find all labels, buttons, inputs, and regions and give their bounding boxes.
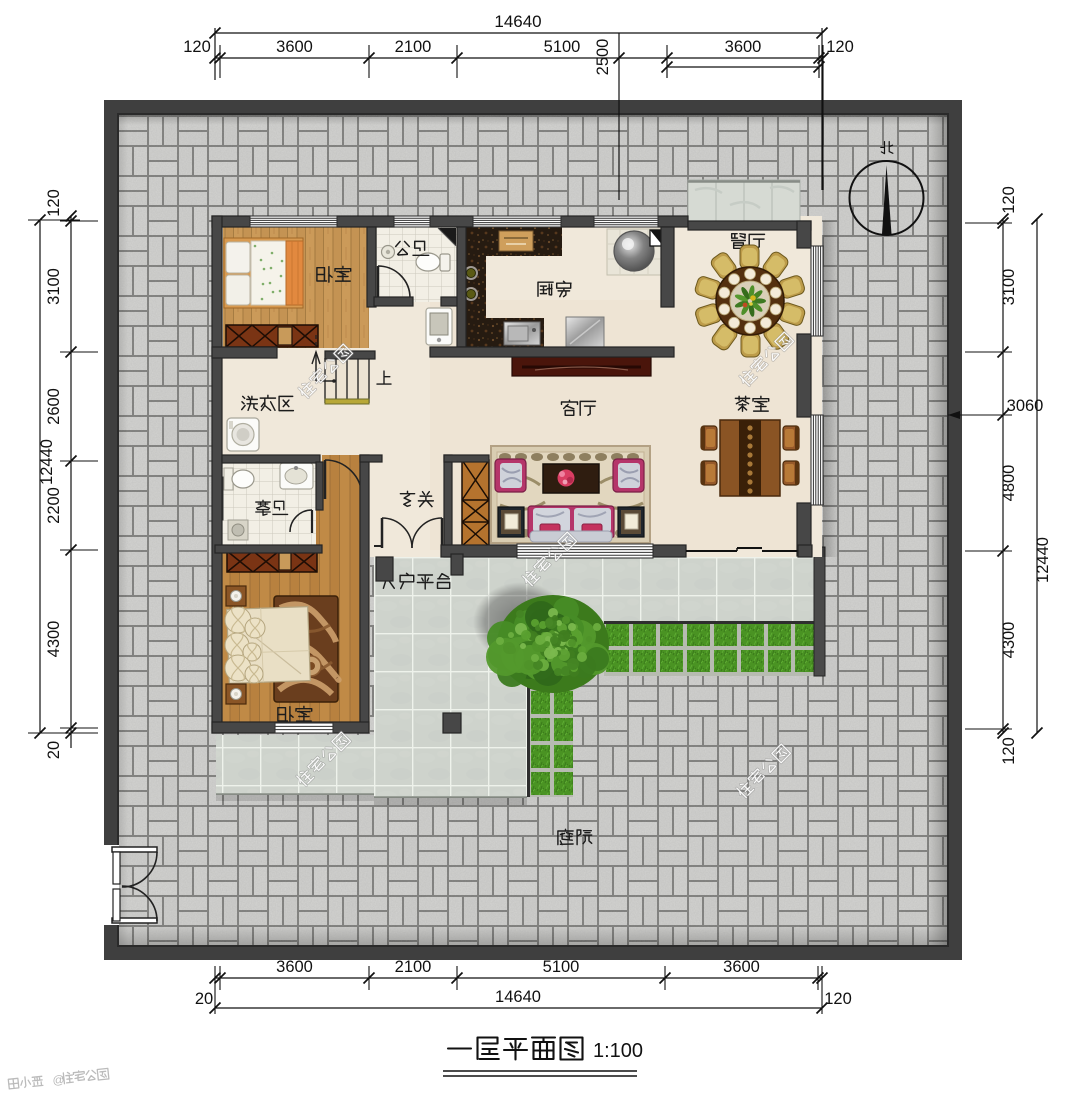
svg-text:12440: 12440: [1034, 537, 1052, 583]
svg-text:5100: 5100: [544, 38, 581, 56]
svg-text:14640: 14640: [495, 988, 541, 1006]
svg-text:2200: 2200: [45, 487, 63, 524]
svg-text:20: 20: [45, 741, 63, 759]
svg-text:3600: 3600: [276, 958, 313, 976]
svg-text:5100: 5100: [543, 958, 580, 976]
svg-text:4800: 4800: [1000, 465, 1018, 502]
svg-text:4300: 4300: [45, 621, 63, 658]
svg-text:2100: 2100: [395, 38, 432, 56]
svg-text:2600: 2600: [45, 388, 63, 425]
svg-text:3100: 3100: [1000, 269, 1018, 306]
svg-text:14640: 14640: [494, 12, 541, 31]
svg-text:120: 120: [183, 38, 211, 56]
svg-text:2500: 2500: [594, 39, 612, 76]
svg-text:20: 20: [195, 990, 213, 1008]
svg-text:3600: 3600: [723, 958, 760, 976]
svg-text:120: 120: [824, 990, 852, 1008]
svg-text:120: 120: [1000, 186, 1018, 214]
svg-text:3100: 3100: [45, 268, 63, 305]
svg-text:4300: 4300: [1000, 622, 1018, 659]
svg-text:120: 120: [1000, 737, 1018, 765]
svg-text:120: 120: [45, 189, 63, 217]
svg-text:1:100: 1:100: [593, 1040, 643, 1062]
svg-text:3600: 3600: [725, 38, 762, 56]
svg-text:2100: 2100: [395, 958, 432, 976]
svg-text:120: 120: [826, 38, 854, 56]
svg-text:3060: 3060: [1007, 397, 1044, 415]
svg-text:12440: 12440: [38, 439, 56, 485]
svg-text:3600: 3600: [276, 38, 313, 56]
